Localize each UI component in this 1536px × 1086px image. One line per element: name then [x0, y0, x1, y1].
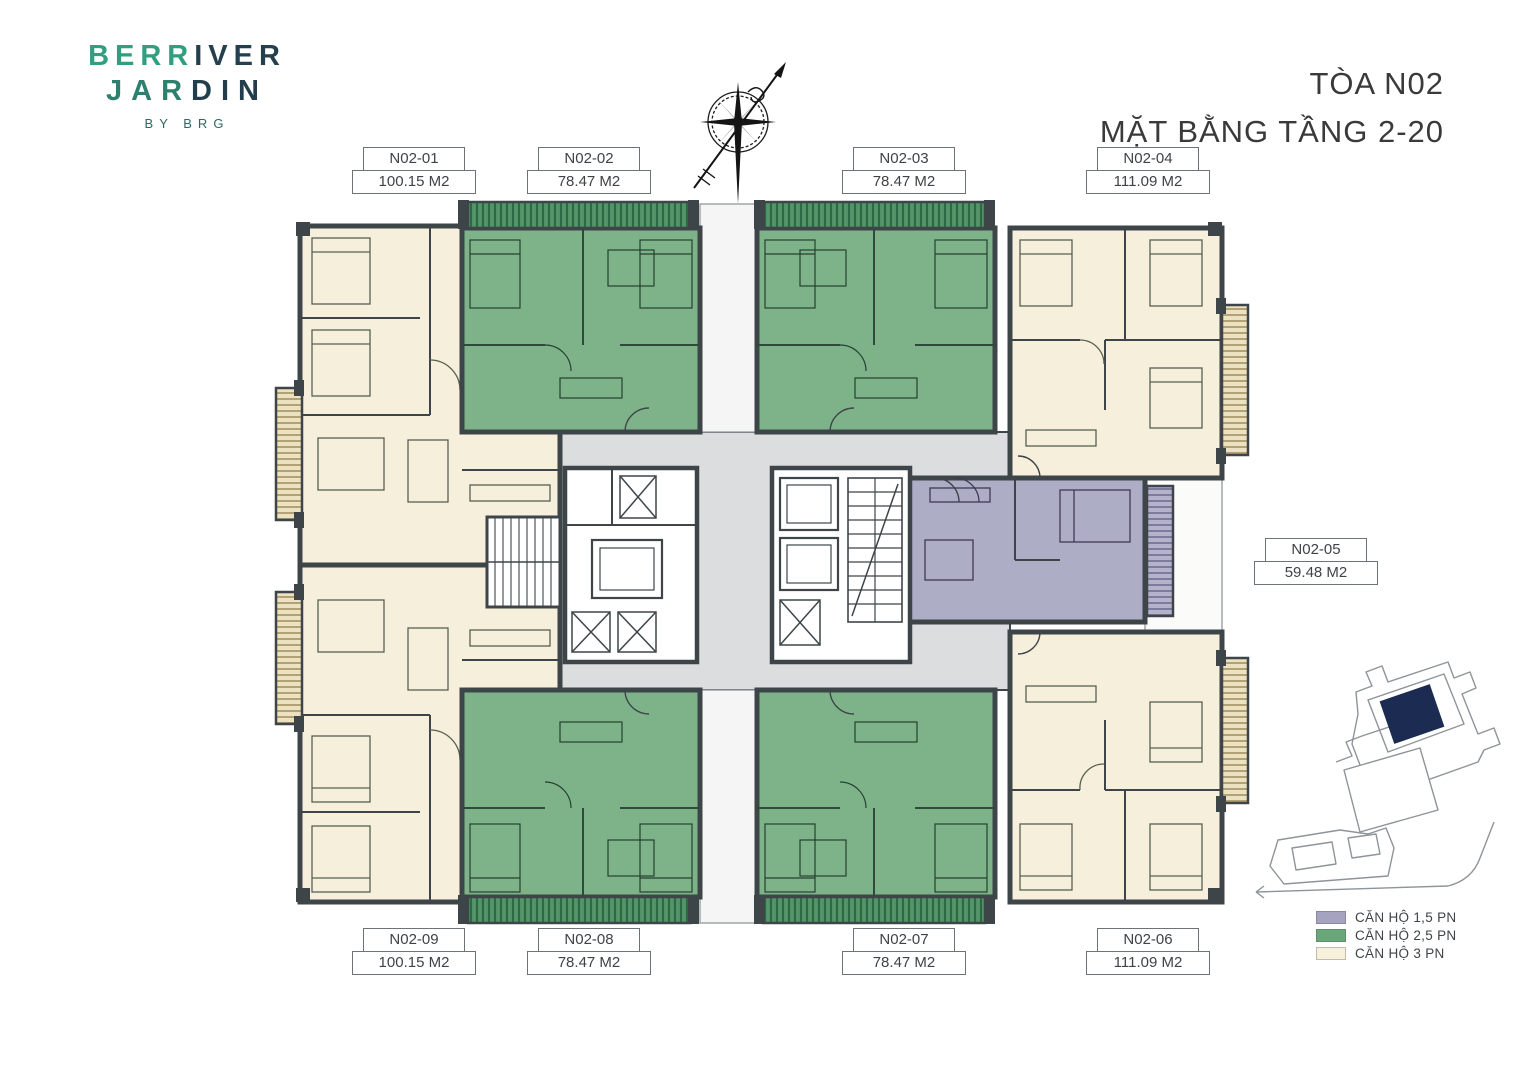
- unit-label-n02-08: N02-08 78.47 M2: [527, 928, 651, 975]
- legend-label: CĂN HỘ 2,5 PN: [1355, 928, 1456, 943]
- balcony-n02-01: [276, 388, 302, 520]
- core-right: [772, 468, 910, 662]
- unit-area: 111.09 M2: [1086, 951, 1210, 975]
- unit-id: N02-04: [1097, 147, 1199, 171]
- balcony-n02-09: [276, 592, 302, 724]
- site-location-minimap-icon: [1248, 652, 1536, 906]
- unit-area: 78.47 M2: [842, 170, 966, 194]
- unit-area: 78.47 M2: [527, 951, 651, 975]
- apartment-n02-02: [462, 228, 700, 432]
- unit-id: N02-05: [1265, 538, 1367, 562]
- unit-id: N02-08: [538, 928, 640, 952]
- unit-label-n02-03: N02-03 78.47 M2: [842, 147, 966, 194]
- unit-id: N02-02: [538, 147, 640, 171]
- unit-label-n02-05: N02-05 59.48 M2: [1254, 538, 1378, 585]
- unit-label-n02-06: N02-06 111.09 M2: [1086, 928, 1210, 975]
- floorplan-page: { "brand": { "part1": "BERR", "part2": "…: [0, 0, 1536, 1086]
- unit-label-n02-07: N02-07 78.47 M2: [842, 928, 966, 975]
- unit-area: 78.47 M2: [527, 170, 651, 194]
- apartment-n02-08: [462, 690, 700, 897]
- balcony-n02-02: [468, 202, 690, 228]
- legend-label: CĂN HỘ 1,5 PN: [1355, 910, 1456, 925]
- balcony-n02-04: [1222, 305, 1248, 455]
- legend-swatch-1-5pn: [1316, 911, 1346, 924]
- legend-row-3pn: CĂN HỘ 3 PN: [1316, 944, 1456, 962]
- apartment-n02-03: [757, 228, 995, 432]
- fire-stairs: [487, 517, 560, 607]
- legend: CĂN HỘ 1,5 PN CĂN HỘ 2,5 PN CĂN HỘ 3 PN: [1316, 908, 1456, 962]
- core-left: [565, 468, 697, 662]
- legend-row-2-5pn: CĂN HỘ 2,5 PN: [1316, 926, 1456, 944]
- balcony-n02-06: [1222, 658, 1248, 803]
- unit-label-n02-01: N02-01 100.15 M2: [352, 147, 476, 194]
- unit-label-n02-02: N02-02 78.47 M2: [527, 147, 651, 194]
- unit-area: 59.48 M2: [1254, 561, 1378, 585]
- apartment-n02-04: [1010, 228, 1222, 478]
- unit-id: N02-06: [1097, 928, 1199, 952]
- apartment-n02-06: [1010, 632, 1222, 902]
- unit-id: N02-01: [363, 147, 465, 171]
- unit-id: N02-09: [363, 928, 465, 952]
- legend-row-1-5pn: CĂN HỘ 1,5 PN: [1316, 908, 1456, 926]
- legend-swatch-3pn: [1316, 947, 1346, 960]
- apartment-n02-07: [757, 690, 995, 897]
- balcony-n02-08: [468, 897, 690, 923]
- unit-id: N02-03: [853, 147, 955, 171]
- unit-label-n02-04: N02-04 111.09 M2: [1086, 147, 1210, 194]
- balcony-n02-05: [1147, 486, 1173, 616]
- unit-area: 111.09 M2: [1086, 170, 1210, 194]
- unit-area: 100.15 M2: [352, 170, 476, 194]
- balcony-n02-07: [763, 897, 985, 923]
- unit-id: N02-07: [853, 928, 955, 952]
- unit-label-n02-09: N02-09 100.15 M2: [352, 928, 476, 975]
- apartment-n02-05: [905, 478, 1145, 622]
- balcony-n02-03: [763, 202, 985, 228]
- legend-label: CĂN HỘ 3 PN: [1355, 946, 1445, 961]
- legend-swatch-2-5pn: [1316, 929, 1346, 942]
- unit-area: 100.15 M2: [352, 951, 476, 975]
- unit-area: 78.47 M2: [842, 951, 966, 975]
